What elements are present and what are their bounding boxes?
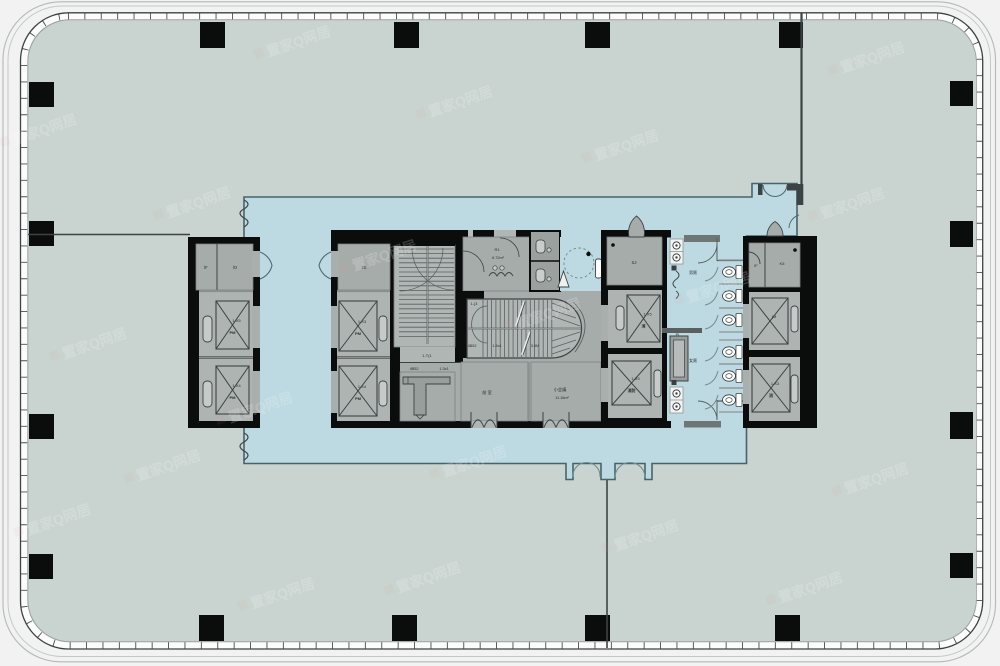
svg-text:1-X5: 1-X5 (643, 312, 651, 317)
svg-text:消: 消 (642, 323, 646, 329)
svg-text:1.5x1: 1.5x1 (492, 344, 501, 348)
svg-text:消: 消 (769, 392, 773, 398)
svg-text:4B52: 4B52 (468, 344, 477, 348)
svg-text:1-X3: 1-X3 (771, 381, 779, 386)
svg-text:3.5M: 3.5M (531, 344, 539, 348)
svg-text:PL: PL (676, 333, 681, 337)
svg-text:女厕: 女厕 (689, 358, 697, 363)
svg-text:(M: (M (772, 314, 777, 319)
svg-text:4B52: 4B52 (410, 367, 419, 371)
svg-text:1-X3: 1-X3 (358, 319, 366, 324)
svg-text:前 室: 前 室 (482, 389, 492, 396)
svg-text:1-(3: 1-(3 (471, 302, 478, 306)
svg-text:R1: R1 (494, 247, 500, 252)
svg-text:lF: lF (754, 263, 758, 268)
svg-text:PM: PM (355, 396, 362, 401)
svg-text:1-X4: 1-X4 (358, 384, 367, 389)
svg-text:男厕: 男厕 (689, 270, 697, 275)
svg-text:1.3x1: 1.3x1 (439, 367, 448, 371)
svg-text:1-X4: 1-X4 (232, 383, 241, 388)
svg-text:小会議: 小会議 (554, 386, 567, 393)
svg-text:11.16m²: 11.16m² (555, 396, 569, 400)
svg-text:PM: PM (230, 395, 237, 400)
svg-text:1-X5: 1-X5 (232, 318, 240, 323)
svg-text:SJ: SJ (632, 260, 637, 265)
svg-text:1-X5: 1-X5 (631, 376, 639, 381)
svg-text:1-T(1: 1-T(1 (422, 353, 432, 358)
svg-text:lF: lF (204, 265, 208, 270)
svg-text:6.72m²: 6.72m² (492, 256, 505, 260)
svg-text:PM: PM (230, 330, 237, 335)
svg-text:消防: 消防 (628, 387, 636, 393)
svg-text:K5: K5 (780, 261, 786, 266)
svg-text:PM: PM (355, 331, 362, 336)
